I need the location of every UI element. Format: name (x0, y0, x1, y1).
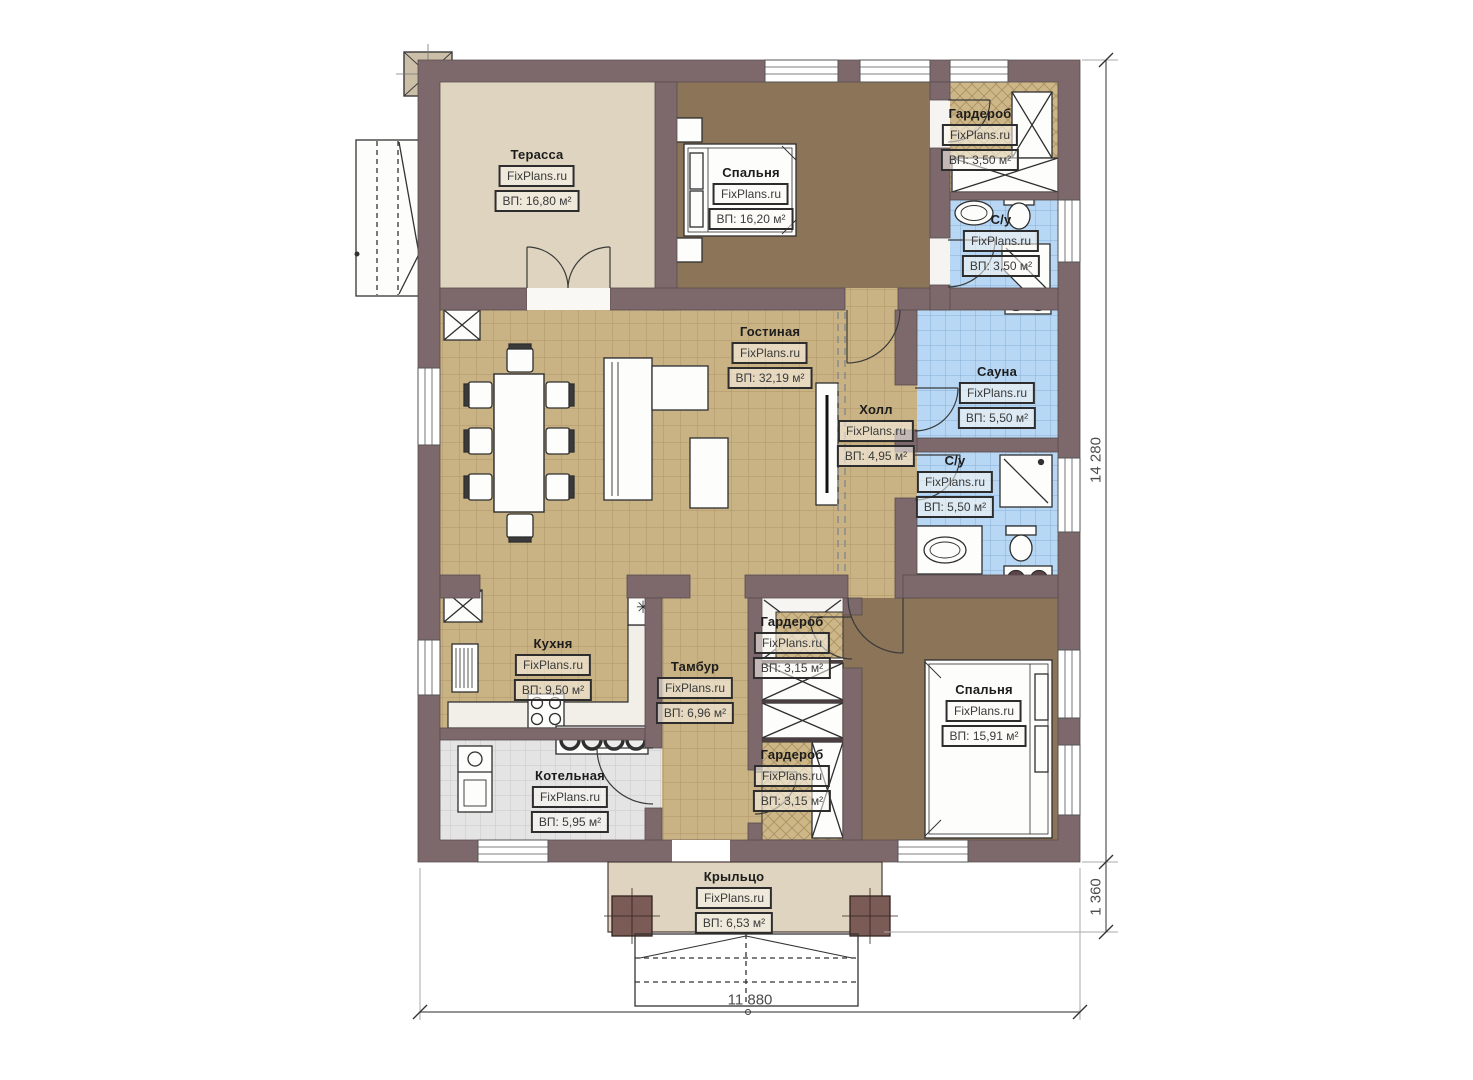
room-area: ВП: 3,15 м² (753, 790, 831, 812)
terrace-door-opening (527, 288, 610, 310)
room-label-wardrobe-1: Гардероб FixPlans.ru ВП: 3,50 м² (941, 106, 1019, 171)
room-label-porch: Крыльцо FixPlans.ru ВП: 6,53 м² (695, 869, 773, 934)
room-label-bathroom-2: С/у FixPlans.ru ВП: 5,50 м² (916, 453, 994, 518)
brand-watermark: FixPlans.ru (515, 654, 591, 676)
room-label-kitchen: Кухня FixPlans.ru ВП: 9,50 м² (514, 636, 592, 701)
room-label-vestibule: Тамбур FixPlans.ru ВП: 6,96 м² (656, 659, 734, 724)
brand-watermark: FixPlans.ru (713, 183, 789, 205)
dim-label-total-height: 14 280 (1088, 437, 1105, 483)
dim-label-porch-depth: 1 360 (1088, 878, 1105, 916)
room-name: Спальня (942, 682, 1027, 697)
window (860, 60, 930, 82)
room-area: ВП: 15,91 м² (942, 725, 1027, 747)
porch-pier (604, 888, 660, 944)
brand-watermark: FixPlans.ru (657, 677, 733, 699)
brand-watermark: FixPlans.ru (532, 786, 608, 808)
room-label-wardrobe-3: Гардероб FixPlans.ru ВП: 3,15 м² (753, 747, 831, 812)
brand-watermark: FixPlans.ru (959, 382, 1035, 404)
room-area: ВП: 5,50 м² (916, 496, 994, 518)
room-name: Котельная (531, 768, 609, 783)
brand-watermark: FixPlans.ru (942, 124, 1018, 146)
room-name: Гардероб (753, 614, 831, 629)
brand-watermark: FixPlans.ru (696, 887, 772, 909)
room-area: ВП: 6,96 м² (656, 702, 734, 724)
window (950, 60, 1008, 82)
room-name: Крыльцо (695, 869, 773, 884)
closet-x-living (444, 310, 480, 340)
room-area: ВП: 3,15 м² (753, 657, 831, 679)
window (765, 60, 838, 82)
dim-label-total-width: 11 880 (728, 992, 773, 1009)
brand-watermark: FixPlans.ru (838, 420, 914, 442)
window (478, 840, 548, 862)
room-area: ВП: 3,50 м² (941, 149, 1019, 171)
room-label-terrace: Терасса FixPlans.ru ВП: 16,80 м² (495, 147, 580, 212)
room-area: ВП: 5,50 м² (958, 407, 1036, 429)
room-label-bathroom-1: С/у FixPlans.ru ВП: 3,50 м² (962, 212, 1040, 277)
room-area: ВП: 16,20 м² (709, 208, 794, 230)
window (1058, 458, 1080, 532)
room-area: ВП: 6,53 м² (695, 912, 773, 934)
room-label-hall: Холл FixPlans.ru ВП: 4,95 м² (837, 402, 915, 467)
room-name: Гардероб (941, 106, 1019, 121)
brand-watermark: FixPlans.ru (917, 471, 993, 493)
window (1058, 200, 1080, 262)
floor-plan: ✳ (0, 0, 1473, 1080)
window (1058, 650, 1080, 718)
room-name: С/у (916, 453, 994, 468)
room-name: Сауна (958, 364, 1036, 379)
brand-watermark: FixPlans.ru (963, 230, 1039, 252)
room-label-wardrobe-2: Гардероб FixPlans.ru ВП: 3,15 м² (753, 614, 831, 679)
room-area: ВП: 4,95 м² (837, 445, 915, 467)
room-label-bedroom-2: Спальня FixPlans.ru ВП: 15,91 м² (942, 682, 1027, 747)
boiler-unit (458, 746, 492, 812)
room-name: Тамбур (656, 659, 734, 674)
window (418, 368, 440, 445)
window (418, 640, 440, 695)
room-name: С/у (962, 212, 1040, 227)
window (898, 840, 968, 862)
room-name: Кухня (514, 636, 592, 651)
room-label-boiler-room: Котельная FixPlans.ru ВП: 5,95 м² (531, 768, 609, 833)
brand-watermark: FixPlans.ru (732, 342, 808, 364)
window (1058, 745, 1080, 815)
porch-pier (842, 888, 898, 944)
room-area: ВП: 32,19 м² (728, 367, 813, 389)
room-label-sauna: Сауна FixPlans.ru ВП: 5,50 м² (958, 364, 1036, 429)
room-name: Холл (837, 402, 915, 417)
brand-watermark: FixPlans.ru (946, 700, 1022, 722)
room-name: Спальня (709, 165, 794, 180)
room-area: ВП: 16,80 м² (495, 190, 580, 212)
room-name: Гардероб (753, 747, 831, 762)
tv-console (816, 383, 838, 505)
brand-watermark: FixPlans.ru (499, 165, 575, 187)
brand-watermark: FixPlans.ru (754, 765, 830, 787)
room-name: Терасса (495, 147, 580, 162)
coffee-table (690, 438, 728, 508)
room-label-living-room: Гостиная FixPlans.ru ВП: 32,19 м² (728, 324, 813, 389)
room-area: ВП: 3,50 м² (962, 255, 1040, 277)
room-label-bedroom-1: Спальня FixPlans.ru ВП: 16,20 м² (709, 165, 794, 230)
entry-door-opening (672, 840, 730, 862)
terrace-side-stairs (355, 140, 421, 296)
room-name: Гостиная (728, 324, 813, 339)
brand-watermark: FixPlans.ru (754, 632, 830, 654)
room-area: ВП: 5,95 м² (531, 811, 609, 833)
room-area: ВП: 9,50 м² (514, 679, 592, 701)
